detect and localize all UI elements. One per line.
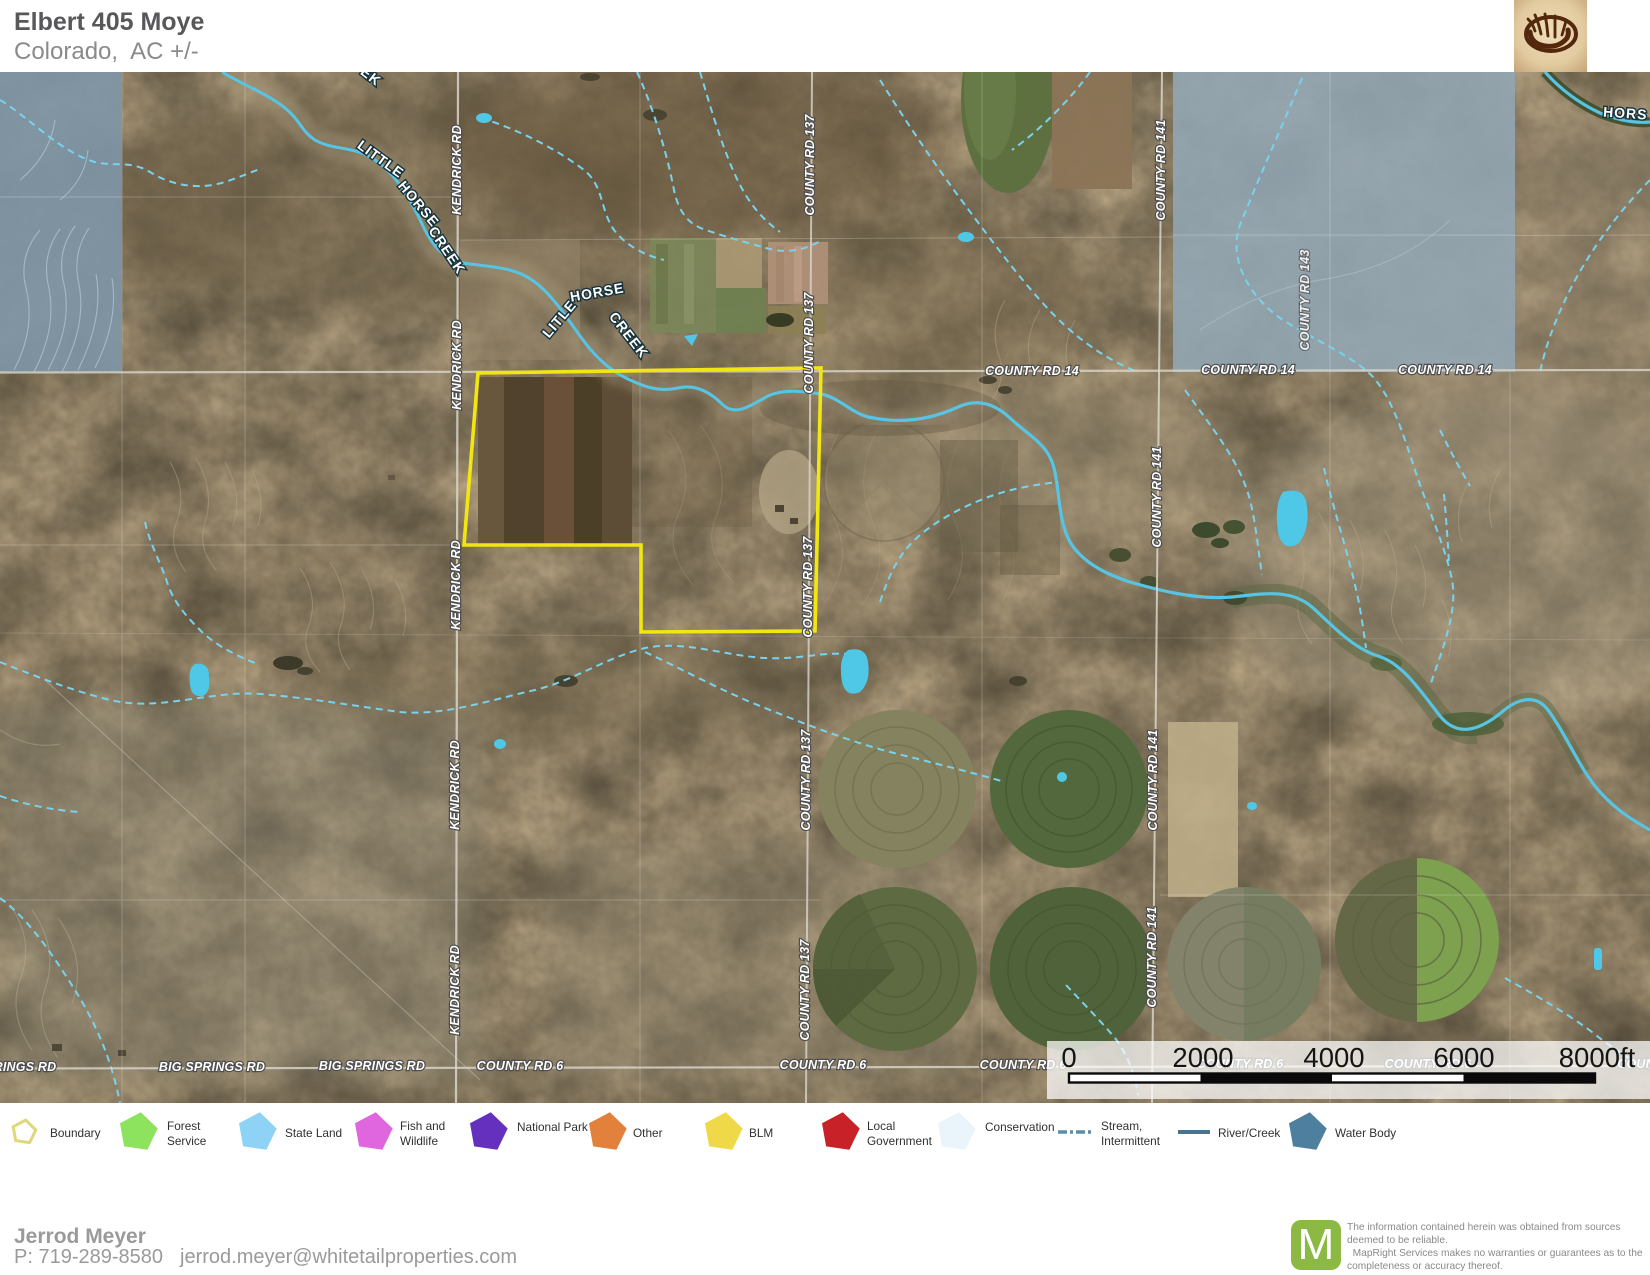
svg-text:COUNTY RD 137: COUNTY RD 137 xyxy=(798,939,812,1041)
svg-text:MapRight Services makes no war: MapRight Services makes no warranties or… xyxy=(1347,1248,1643,1259)
svg-text:RINGS RD: RINGS RD xyxy=(0,1060,56,1074)
svg-text:KENDRICK RD: KENDRICK RD xyxy=(448,740,462,830)
svg-text:Other: Other xyxy=(633,1126,663,1140)
svg-text:COUNTY RD 137: COUNTY RD 137 xyxy=(801,536,815,638)
svg-text:COUNTY RD 141: COUNTY RD 141 xyxy=(1146,729,1160,830)
svg-text:8000ft: 8000ft xyxy=(1559,1042,1636,1073)
svg-text:6000: 6000 xyxy=(1433,1042,1494,1073)
svg-text:National Park: National Park xyxy=(517,1120,588,1134)
svg-text:Intermittent: Intermittent xyxy=(1101,1134,1161,1148)
svg-text:KENDRICK RD: KENDRICK RD xyxy=(449,540,463,630)
svg-text:KENDRICK RD: KENDRICK RD xyxy=(450,125,464,215)
svg-text:Boundary: Boundary xyxy=(50,1126,101,1140)
svg-text:COUNTY RD 143: COUNTY RD 143 xyxy=(1298,249,1312,350)
svg-text:Stream,: Stream, xyxy=(1101,1119,1142,1133)
svg-text:Forest: Forest xyxy=(167,1119,201,1133)
svg-text:completeness or accuracy there: completeness or accuracy thereof. xyxy=(1347,1261,1503,1272)
svg-text:4000: 4000 xyxy=(1303,1042,1364,1073)
svg-text:Conservation: Conservation xyxy=(985,1120,1055,1134)
svg-text:BLM: BLM xyxy=(749,1126,773,1140)
svg-text:Jerrod Meyer: Jerrod Meyer xyxy=(14,1225,146,1248)
svg-text:KENDRICK RD: KENDRICK RD xyxy=(450,320,464,410)
svg-text:COUNTY RD 14: COUNTY RD 14 xyxy=(1398,363,1492,377)
svg-text:deemed to be reliable.: deemed to be reliable. xyxy=(1347,1235,1448,1246)
svg-text:Local: Local xyxy=(867,1119,895,1133)
svg-text:The information contained here: The information contained herein was obt… xyxy=(1347,1222,1621,1233)
svg-text:COUNTY RD 141: COUNTY RD 141 xyxy=(1150,446,1164,547)
svg-text:P: 719-289-8580: P: 719-289-8580 xyxy=(14,1246,163,1268)
svg-text:COUNTY RD 137: COUNTY RD 137 xyxy=(803,114,817,216)
svg-text:COUNTY RD 137: COUNTY RD 137 xyxy=(802,292,816,394)
svg-text:COUNTY RD 6: COUNTY RD 6 xyxy=(477,1059,565,1073)
svg-text:KENDRICK RD: KENDRICK RD xyxy=(448,945,462,1035)
svg-text:Water Body: Water Body xyxy=(1335,1126,1396,1140)
svg-text:COUNTY RD 14: COUNTY RD 14 xyxy=(1201,363,1295,377)
svg-text:Service: Service xyxy=(167,1134,207,1148)
svg-text:Wildlife: Wildlife xyxy=(400,1134,438,1148)
svg-text:HORS: HORS xyxy=(1603,103,1648,122)
svg-text:COUNTY RD 14: COUNTY RD 14 xyxy=(985,364,1079,378)
svg-text:BIG SPRINGS RD: BIG SPRINGS RD xyxy=(159,1060,265,1074)
svg-text:COUNTY RD 6: COUNTY RD 6 xyxy=(780,1058,868,1072)
svg-text:0: 0 xyxy=(1061,1042,1076,1073)
svg-text:COUNTY RD 141: COUNTY RD 141 xyxy=(1145,906,1159,1007)
svg-text:BIG SPRINGS RD: BIG SPRINGS RD xyxy=(319,1059,425,1073)
svg-text:COUNTY RD 137: COUNTY RD 137 xyxy=(799,729,813,831)
svg-text:jerrod.meyer@whitetailproperti: jerrod.meyer@whitetailproperties.com xyxy=(179,1246,517,1268)
svg-text:Government: Government xyxy=(867,1134,933,1148)
svg-text:State Land: State Land xyxy=(285,1126,342,1140)
svg-text:Fish and: Fish and xyxy=(400,1119,445,1133)
svg-text:COUNTY RD 141: COUNTY RD 141 xyxy=(1154,119,1168,220)
svg-text:2000: 2000 xyxy=(1172,1042,1233,1073)
svg-text:M: M xyxy=(1298,1220,1335,1269)
svg-text:River/Creek: River/Creek xyxy=(1218,1126,1280,1140)
